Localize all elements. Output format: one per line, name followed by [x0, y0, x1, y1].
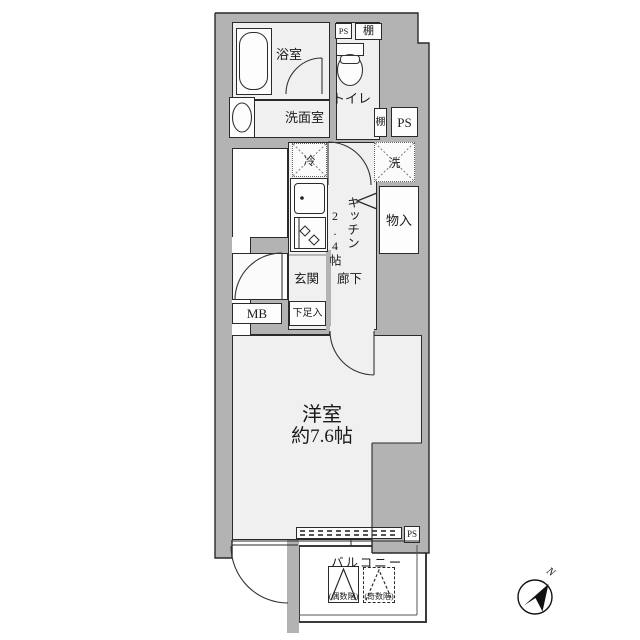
kitchen-label: キッチン: [343, 196, 362, 250]
shelf-box-right: 棚: [374, 108, 387, 137]
washbasin-counter: [229, 97, 255, 138]
stove-icon: [294, 217, 326, 249]
wall-top-right-step: [418, 43, 429, 148]
odd-floor-label: (奇数階): [364, 593, 393, 602]
escape-hatch-even: (偶数階): [328, 566, 359, 603]
wall-left-strip: [215, 148, 232, 558]
meter-box: MB: [232, 303, 282, 324]
wall-balcony-divider: [287, 540, 299, 633]
exterior-notch-lower: [232, 237, 250, 253]
escape-hatch-odd: (奇数階): [363, 567, 395, 603]
balcony-window: [296, 527, 402, 539]
exterior-notch: [232, 148, 288, 237]
floor-plan: PS 棚 棚 PS 冷 洗 物入 MB 下足入 PS (偶数階) (奇数階) 浴…: [0, 0, 640, 640]
compass-icon: [518, 580, 552, 614]
window-hatch-row: [300, 530, 398, 532]
closet-box: 物入: [379, 186, 419, 254]
shelf-label-right: 棚: [376, 118, 386, 128]
ps-box-right: PS: [391, 107, 418, 137]
ps-label-right: PS: [397, 116, 411, 129]
closet-label: 物入: [386, 214, 412, 227]
ps-box-bottom: PS: [404, 526, 420, 543]
entrance-floor: [232, 253, 288, 300]
balcony-label: バルコニー: [331, 552, 403, 571]
ps-label-bottom: PS: [407, 530, 417, 539]
room-door-opening: [330, 326, 374, 338]
ps-label-toilet: PS: [339, 27, 348, 36]
kitchen-size-label: 2.4帖: [327, 209, 344, 267]
shoe-box: 下足入: [289, 301, 326, 326]
bathtub-icon: [239, 32, 268, 90]
bathroom-label: 浴室: [276, 44, 302, 63]
refrigerator-space: 冷: [292, 143, 327, 177]
shoe-box-label: 下足入: [293, 309, 323, 319]
western-room-size-label: 約7.6帖: [270, 421, 374, 448]
hallway-label: 廊下: [337, 268, 362, 287]
toilet-ps-box: PS: [335, 23, 352, 39]
even-floor-label: (偶数階): [329, 593, 358, 602]
shelf-label-toilet: 棚: [363, 26, 374, 37]
washer-space: 洗: [374, 142, 415, 182]
north-label: N: [544, 565, 557, 579]
fridge-label: 冷: [302, 152, 316, 169]
toilet-label: トイレ: [332, 88, 371, 107]
wall-room-right: [422, 330, 429, 443]
washroom-label: 洗面室: [285, 107, 324, 126]
toilet-tank: [336, 43, 364, 56]
toilet-shelf-box: 棚: [355, 23, 382, 40]
entrance-label: 玄関: [294, 268, 319, 287]
door-arc-bottom-left: [231, 546, 288, 603]
kitchen-sink-icon: [294, 183, 325, 214]
meter-box-label: MB: [247, 307, 267, 320]
washer-label: 洗: [387, 154, 401, 171]
window-hatch-row: [300, 534, 398, 536]
